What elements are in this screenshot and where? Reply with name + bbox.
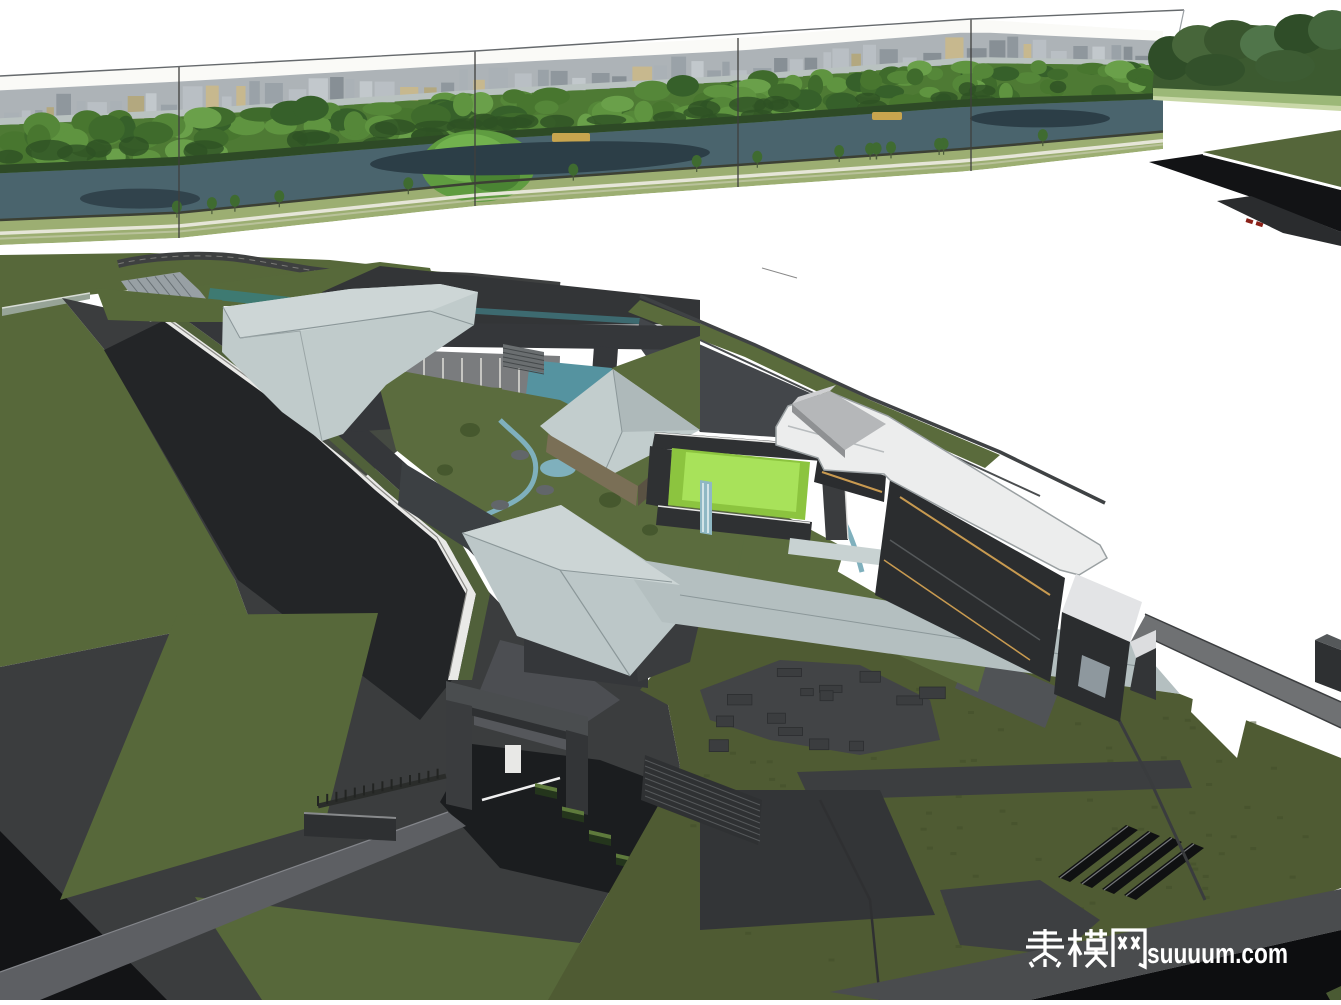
svg-text:suuuum.com: suuuum.com bbox=[1147, 938, 1288, 969]
